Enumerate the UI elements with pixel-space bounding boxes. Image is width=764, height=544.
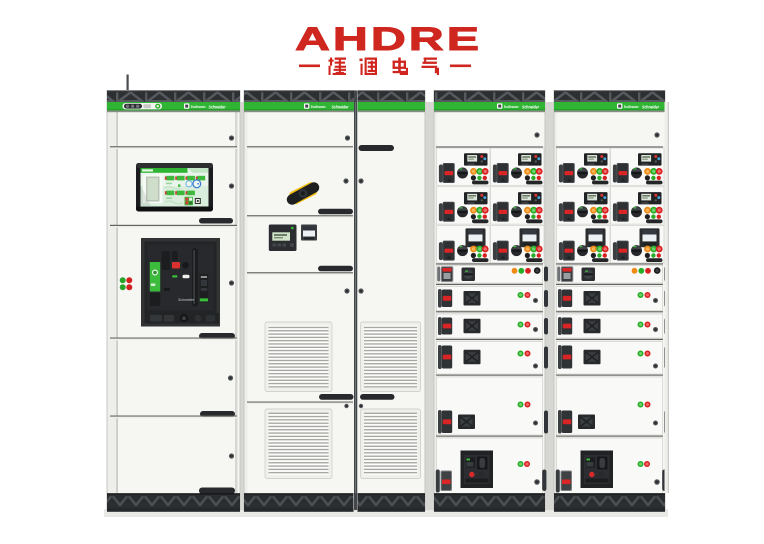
svg-text:EcoStruxure: EcoStruxure xyxy=(191,104,206,109)
svg-text:AHDRE: AHDRE xyxy=(295,21,482,57)
svg-text:Schneider: Schneider xyxy=(209,104,226,109)
svg-text:Schneider: Schneider xyxy=(332,104,349,109)
svg-text:Schneider: Schneider xyxy=(522,104,539,109)
svg-text:Schneider: Schneider xyxy=(642,104,659,109)
svg-text:Schneider: Schneider xyxy=(178,298,195,302)
svg-text:EcoStruxure: EcoStruxure xyxy=(504,104,519,109)
svg-text:EcoStruxure: EcoStruxure xyxy=(624,104,639,109)
svg-text:EcoStruxure: EcoStruxure xyxy=(311,104,326,109)
